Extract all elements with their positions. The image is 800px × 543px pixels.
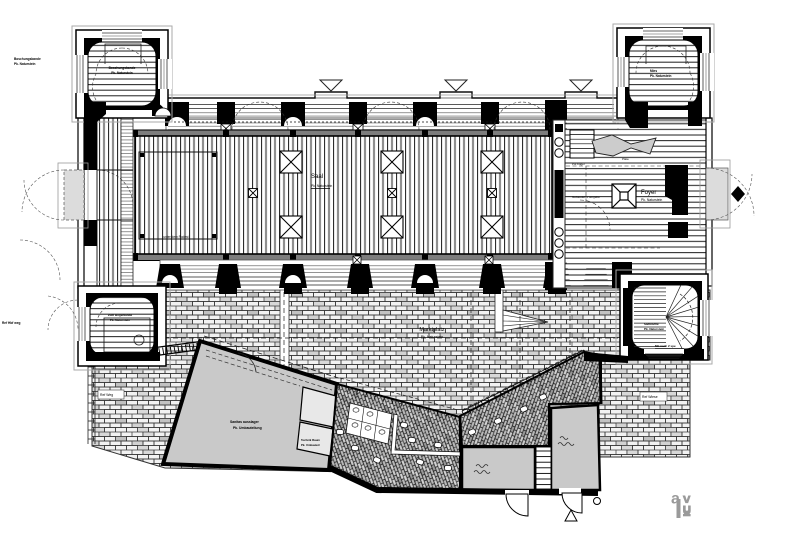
svg-text:Boschungsbande: Boschungsbande [109,66,136,70]
svg-text:Mit nach 2 spe: Mit nach 2 spe [655,344,676,348]
svg-text:Pk. Naturstein: Pk. Naturstein [421,335,444,339]
svg-text:Gebaudeli o umgebe: Gebaudeli o umgebe [572,195,600,199]
svg-text:Pk. Naturstein: Pk. Naturstein [110,318,130,322]
svg-text:Pk. Naturstein: Pk. Naturstein [111,71,132,75]
svg-text:Boschungsbande: Boschungsbande [14,57,41,61]
svg-text:Marktplatz: Marktplatz [419,327,445,333]
svg-text:Mies: Mies [650,69,657,73]
svg-text:Ref Wiese: Ref Wiese [642,395,658,399]
svg-text:Pk. Naturstein: Pk. Naturstein [311,184,332,188]
svg-text:Pk. Umbauteil: Pk. Umbauteil [301,443,320,447]
svg-text:Plate: Plate [622,157,629,161]
svg-text:Pk. Naturstein: Pk. Naturstein [644,327,664,331]
svg-text:Pk. Naturstein: Pk. Naturstein [650,74,671,78]
svg-text:Ref Hbf weg: Ref Hbf weg [2,321,20,325]
svg-text:Pol bügel: Pol bügel [572,162,585,166]
svg-text:Ref Weg: Ref Weg [100,393,113,397]
svg-text:Pk. Naturstein: Pk. Naturstein [14,62,35,66]
svg-text:Foyer: Foyer [641,190,656,196]
svg-text:Pk. Naturstein: Pk. Naturstein [641,198,662,202]
svg-text:Saal: Saal [311,174,323,180]
svg-text:Zum Bogenlande: Zum Bogenlande [108,313,133,317]
svg-text:Sackische: Sackische [644,322,659,326]
svg-text:unter dem Podest: unter dem Podest [163,235,188,239]
svg-text:Technik Raum: Technik Raum [301,438,320,442]
svg-text:Sanitas ausslager: Sanitas ausslager [230,420,260,424]
svg-text:Pk. Umbauteilung: Pk. Umbauteilung [233,426,262,430]
